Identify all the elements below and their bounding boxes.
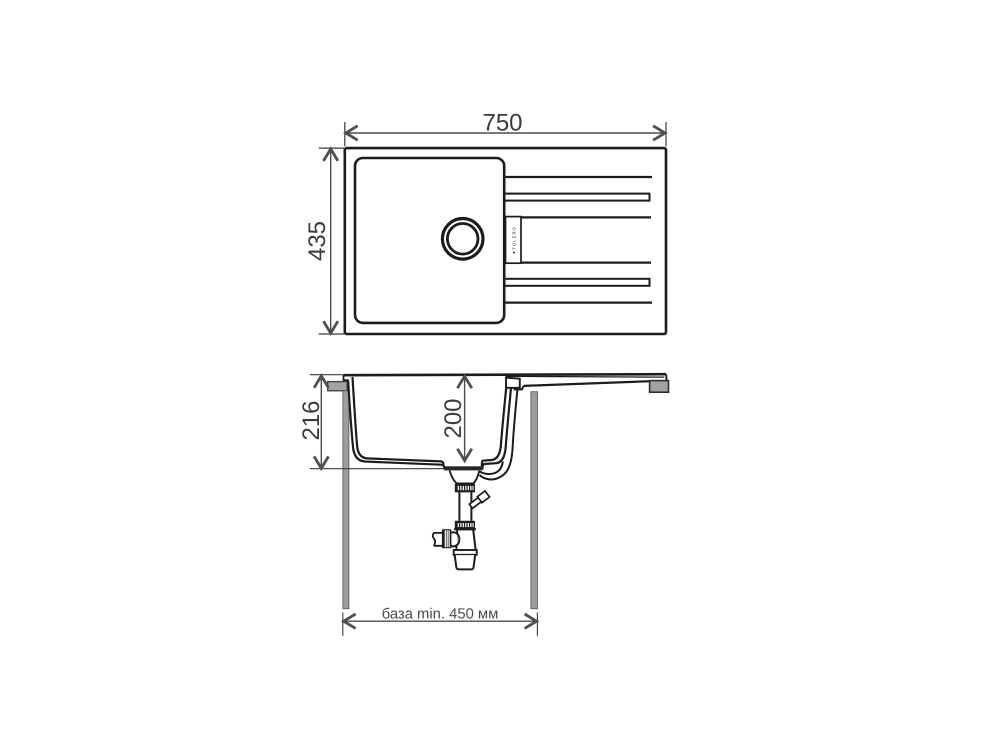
svg-text:435: 435 bbox=[304, 221, 331, 261]
svg-text:база min. 450 мм: база min. 450 мм bbox=[382, 606, 499, 622]
svg-text:216: 216 bbox=[298, 400, 325, 440]
svg-text:▼TOLERO: ▼TOLERO bbox=[512, 226, 517, 255]
svg-text:750: 750 bbox=[482, 109, 522, 136]
svg-text:200: 200 bbox=[440, 398, 467, 438]
